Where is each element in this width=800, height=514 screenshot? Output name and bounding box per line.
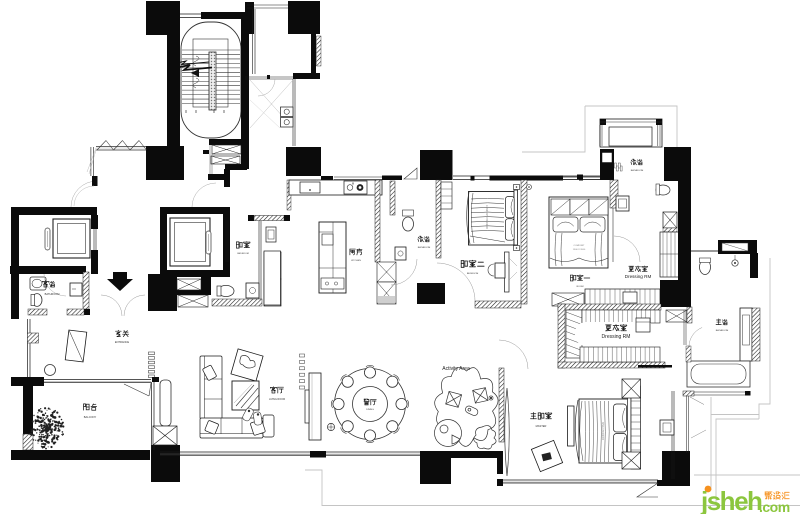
svg-text:Dressing RM: Dressing RM [625,274,652,279]
svg-text:BEDROOM: BEDROOM [467,273,478,275]
svg-text:BATHROOM: BATHROOM [45,292,60,296]
svg-text:ROOM: ROOM [577,286,584,288]
svg-text:BATHROOM: BATHROOM [716,329,729,332]
svg-text:COMFORT: COMFORT [573,245,585,247]
svg-text:.com: .com [759,499,790,514]
svg-text:BATHROOM: BATHROOM [418,246,431,249]
svg-text:KITCHEN: KITCHEN [351,260,361,262]
svg-text:LIVING ROOM: LIVING ROOM [269,398,285,401]
svg-text:ENTRANCE: ENTRANCE [115,340,130,344]
svg-text:BATHROOM: BATHROOM [631,169,644,172]
svg-text:KING 1800X2000: KING 1800X2000 [601,422,603,441]
svg-text:BEDROOM: BEDROOM [237,253,248,255]
svg-text:jsheh: jsheh [700,486,762,514]
svg-text:COMFORT 1500X2000: COMFORT 1500X2000 [485,205,487,230]
svg-text:1500 X 2000: 1500 X 2000 [573,249,586,251]
svg-text:MASTER: MASTER [536,424,547,428]
svg-text:Dressing RM: Dressing RM [602,334,631,340]
svg-text:DINING: DINING [366,409,374,411]
svg-text:BALCONY: BALCONY [84,415,97,419]
svg-text:Activity Area: Activity Area [442,366,470,372]
